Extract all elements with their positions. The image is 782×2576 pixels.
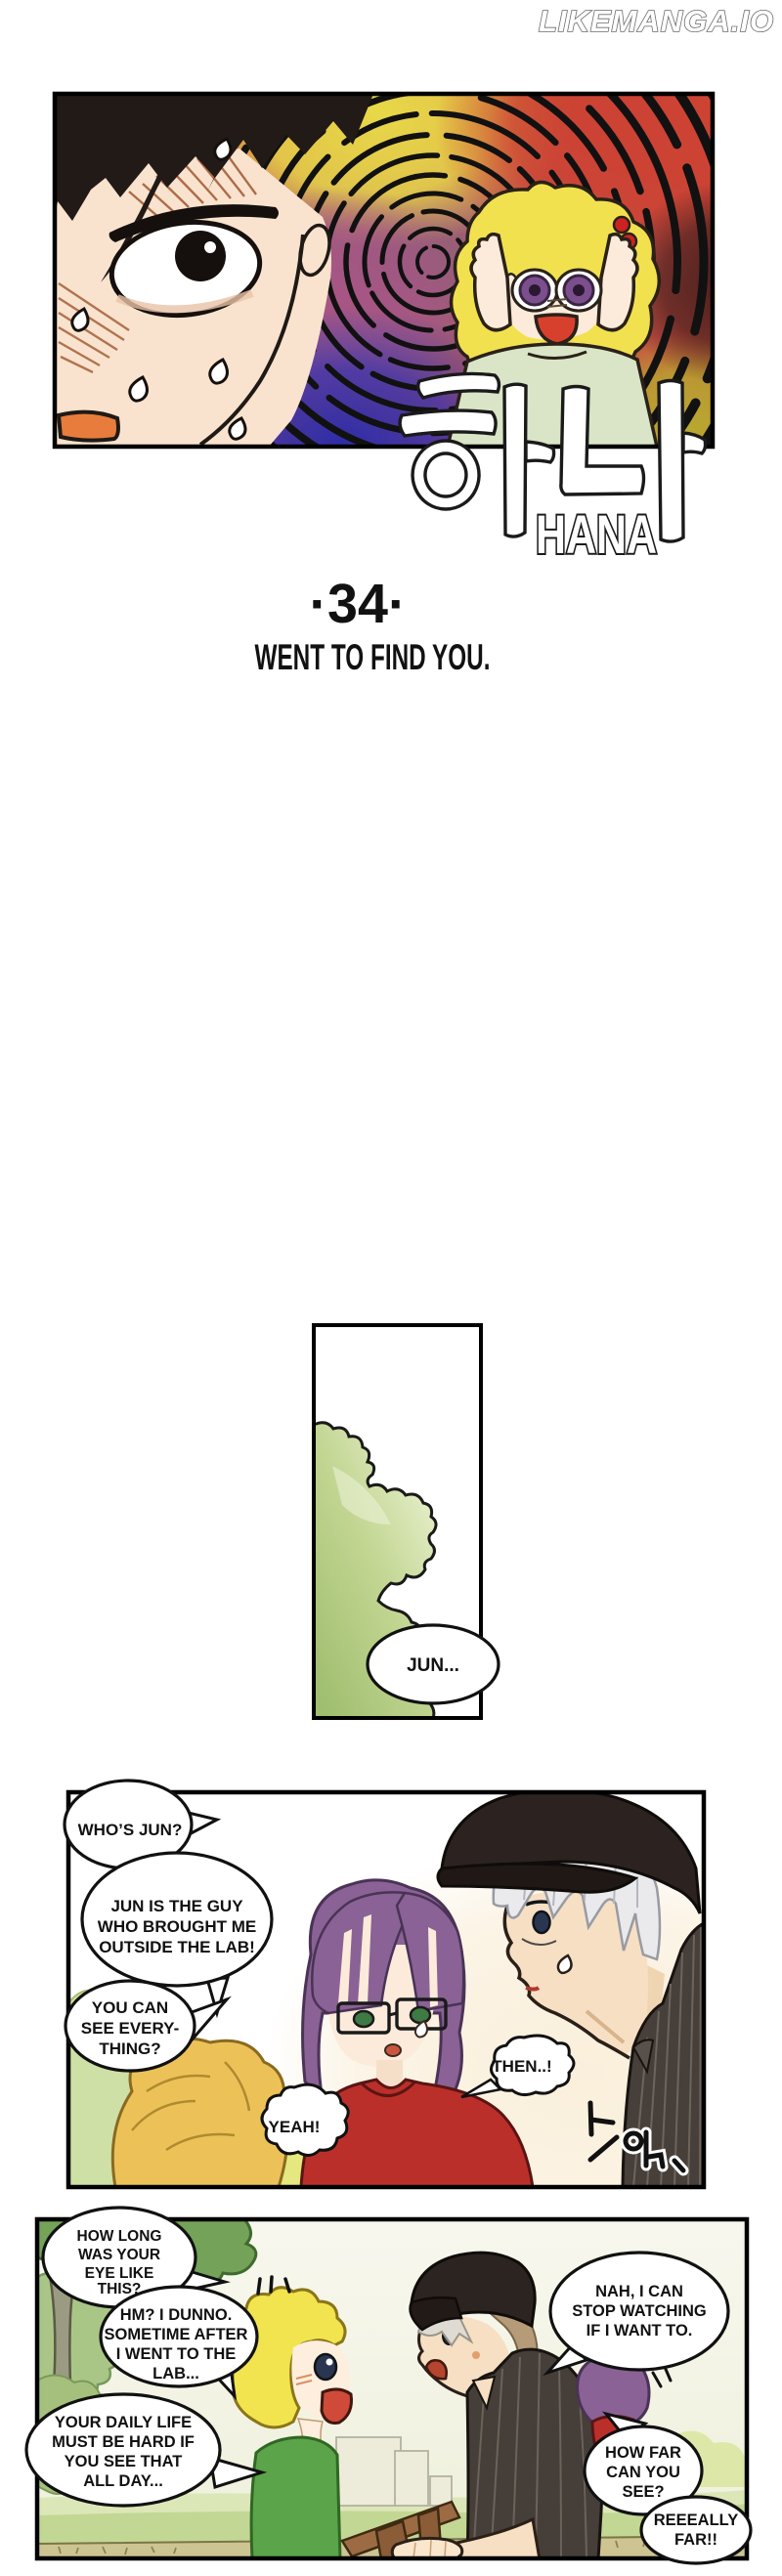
svg-text:EYE LIKE: EYE LIKE	[85, 2265, 154, 2282]
svg-text:HANA: HANA	[536, 503, 657, 565]
svg-text:STOP WATCHING: STOP WATCHING	[572, 2302, 707, 2320]
svg-text:HOW LONG: HOW LONG	[77, 2228, 162, 2245]
svg-text:FAR!!: FAR!!	[674, 2531, 717, 2549]
svg-text:YOU CAN: YOU CAN	[92, 1998, 168, 2017]
svg-text:HOW FAR: HOW FAR	[605, 2444, 681, 2462]
svg-text:WHO’S JUN?: WHO’S JUN?	[78, 1821, 183, 1839]
svg-text:YOU SEE THAT: YOU SEE THAT	[65, 2453, 183, 2470]
svg-text:SEE EVERY-: SEE EVERY-	[81, 2019, 179, 2038]
svg-text:SEE?: SEE?	[622, 2483, 664, 2501]
svg-text:JUN IS THE GUY: JUN IS THE GUY	[110, 1897, 243, 1915]
svg-text:ALL DAY...: ALL DAY...	[83, 2472, 163, 2490]
svg-text:LAB...: LAB...	[152, 2365, 199, 2383]
svg-text:THING?: THING?	[99, 2039, 160, 2058]
svg-text:THEN..!: THEN..!	[492, 2057, 551, 2076]
svg-text:SOMETIME AFTER: SOMETIME AFTER	[105, 2326, 248, 2343]
svg-text:OUTSIDE THE LAB!: OUTSIDE THE LAB!	[99, 1938, 255, 1956]
svg-text:CAN YOU: CAN YOU	[606, 2464, 680, 2481]
svg-text:REEEALLY: REEEALLY	[654, 2512, 739, 2529]
svg-text:YOUR DAILY LIFE: YOUR DAILY LIFE	[55, 2414, 192, 2431]
svg-text:LIKEMANGA.IO: LIKEMANGA.IO	[539, 4, 774, 38]
svg-text:·34·: ·34·	[310, 573, 407, 635]
svg-text:I WENT TO THE: I WENT TO THE	[116, 2345, 237, 2363]
svg-text:YEAH!: YEAH!	[269, 2118, 321, 2136]
svg-text:MUST BE HARD IF: MUST BE HARD IF	[52, 2433, 195, 2451]
svg-text:JUN...: JUN...	[407, 1655, 459, 1676]
svg-text:NAH, I CAN: NAH, I CAN	[595, 2283, 683, 2300]
svg-text:IF I WANT TO.: IF I WANT TO.	[586, 2322, 693, 2340]
svg-text:WAS YOUR: WAS YOUR	[78, 2247, 160, 2263]
svg-text:WENT TO FIND YOU.: WENT TO FIND YOU.	[255, 637, 491, 677]
svg-text:WHO BROUGHT ME: WHO BROUGHT ME	[98, 1917, 256, 1936]
svg-text:HM? I DUNNO.: HM? I DUNNO.	[120, 2306, 233, 2324]
